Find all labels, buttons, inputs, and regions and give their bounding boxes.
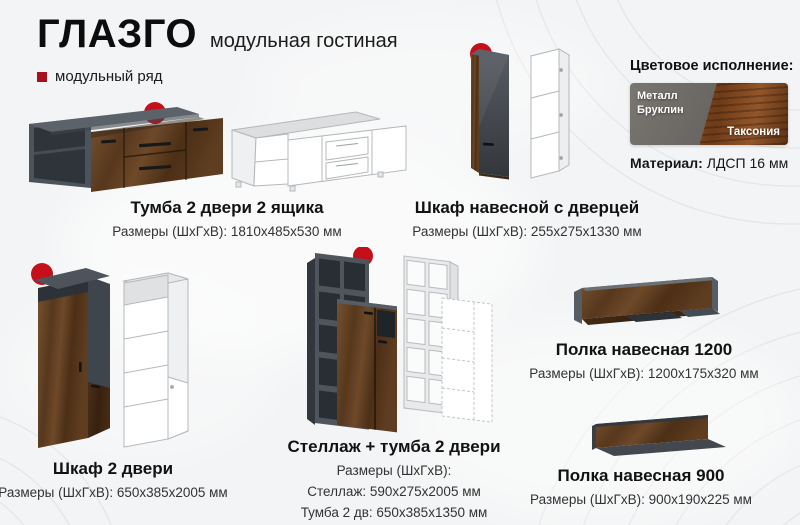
product-size: Размеры (ШхГхВ): 1810x485x530 мм [77,224,377,241]
product-name: Шкаф навесной с дверцей [377,198,677,218]
polka900-render-illustration [586,412,726,458]
product-size: Размеры (ШхГхВ): 900x190x225 мм [491,492,791,509]
tumba-wireframe-illustration [228,102,413,192]
stellazh-render-illustration [301,247,403,439]
stellazh-wireframe-illustration [398,252,498,434]
red-square-bullet-icon [37,72,47,82]
product-name: Полка навесная 900 [491,466,791,486]
product-name: Шкаф 2 двери [0,459,263,479]
shkaf2-render-illustration [30,258,114,452]
product-caption-polka900: Полка навесная 900 Размеры (ШхГхВ): 900x… [491,466,791,509]
product-caption-polka1200: Полка навесная 1200 Размеры (ШхГхВ): 120… [494,340,794,383]
material-value: ЛДСП 16 мм [707,155,788,171]
product-caption-tumba: Тумба 2 двери 2 ящика Размеры (ШхГхВ): 1… [77,198,377,241]
catalog-page: ГЛАЗГО модульная гостиная модульный ряд … [0,0,800,525]
product-size: Размеры (ШхГхВ): 255x275x1330 мм [377,224,677,241]
metal-swatch-label: Металл Бруклин [637,89,699,118]
tumba-render-illustration [27,100,227,194]
navesnoy-wireframe-illustration [524,42,574,184]
series-tagline: модульный ряд [37,68,162,85]
product-size: Размеры (ШхГхВ): 1200x175x320 мм [494,366,794,383]
product-size: Размеры (ШхГхВ): 650x385x2005 мм [0,485,263,502]
material-label: Материал: [630,155,703,171]
product-name: Стеллаж + тумба 2 двери [244,437,544,457]
product-caption-navesnoy: Шкаф навесной с дверцей Размеры (ШхГхВ):… [377,198,677,241]
header: ГЛАЗГО модульная гостиная [37,12,398,56]
page-subtitle: модульная гостиная [210,30,398,53]
product-name: Полка навесная 1200 [494,340,794,360]
series-label: модульный ряд [55,68,162,85]
polka1200-render-illustration [568,272,720,334]
product-caption-shkaf2: Шкаф 2 двери Размеры (ШхГхВ): 650x385x20… [0,459,263,502]
shkaf2-wireframe-illustration [118,257,194,451]
product-name: Тумба 2 двери 2 ящика [77,198,377,218]
material-line: Материал:ЛДСП 16 мм [630,155,794,171]
wood-swatch-label: Таксония [727,125,780,140]
navesnoy-render-illustration [464,42,520,182]
page-title: ГЛАЗГО [37,12,197,56]
finish-title: Цветовое исполнение: [630,58,794,74]
finish-panel: Цветовое исполнение: Металл Бруклин Такс… [630,58,794,171]
color-swatch: Металл Бруклин Таксония [630,83,788,145]
